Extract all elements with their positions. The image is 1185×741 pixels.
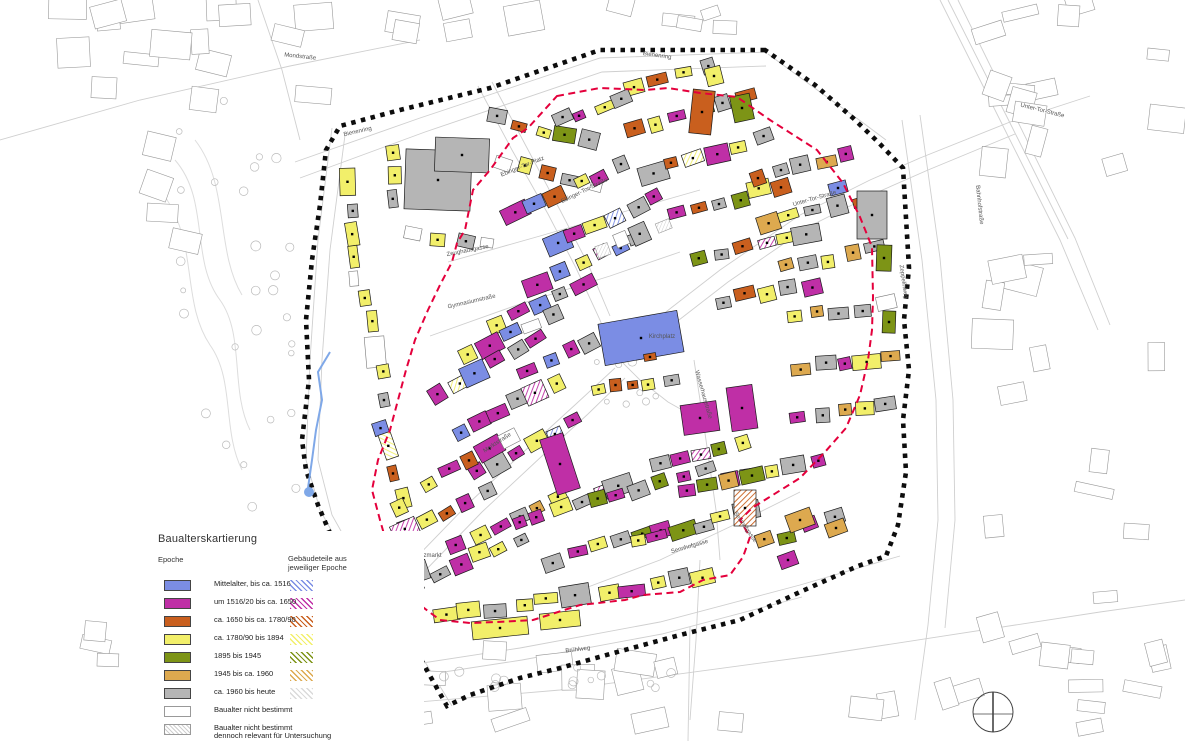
tree-icon bbox=[239, 187, 248, 196]
building-survey-dot bbox=[864, 407, 866, 409]
unclassified-building bbox=[142, 131, 176, 161]
building-survey-dot bbox=[704, 467, 706, 469]
legend-title: Baualterskartierung bbox=[158, 533, 424, 545]
building-survey-dot bbox=[459, 382, 461, 384]
building-survey-dot bbox=[786, 537, 788, 539]
building-survey-dot bbox=[535, 516, 537, 518]
building-survey-dot bbox=[737, 146, 739, 148]
unclassified-building bbox=[1093, 590, 1118, 603]
unclassified-building bbox=[84, 621, 107, 642]
tree-icon bbox=[647, 680, 654, 687]
building-survey-dot bbox=[560, 506, 562, 508]
building-survey-dot bbox=[517, 348, 519, 350]
tree-icon bbox=[271, 271, 280, 280]
building-survey-dot bbox=[582, 261, 584, 263]
building-survey-dot bbox=[837, 312, 839, 314]
unclassified-building bbox=[1148, 342, 1165, 370]
unclassified-building bbox=[1148, 104, 1185, 133]
unclassified-building bbox=[971, 20, 1006, 45]
building-survey-dot bbox=[757, 177, 759, 179]
building-survey-dot bbox=[563, 134, 565, 136]
building-survey-dot bbox=[461, 154, 463, 156]
building-survey-dot bbox=[536, 440, 538, 442]
building-survey-dot bbox=[478, 551, 480, 553]
unclassified-building bbox=[1102, 153, 1128, 176]
tree-icon bbox=[283, 314, 290, 321]
building-survey-dot bbox=[436, 239, 438, 241]
building-survey-dot bbox=[526, 370, 528, 372]
tree-icon bbox=[176, 129, 182, 135]
building-survey-dot bbox=[766, 293, 768, 295]
unclassified-building bbox=[295, 85, 332, 104]
unclassified-building bbox=[1071, 649, 1094, 665]
building-survey-dot bbox=[780, 169, 782, 171]
building-survey-dot bbox=[394, 174, 396, 176]
unclassified-building bbox=[934, 677, 959, 710]
building-survey-dot bbox=[559, 619, 561, 621]
building-survey-dot bbox=[799, 519, 801, 521]
tree-icon bbox=[289, 341, 295, 347]
building-survey-dot bbox=[352, 210, 354, 212]
building bbox=[403, 226, 422, 241]
legend-label: Baualter nicht bestimmt dennoch relevant… bbox=[214, 724, 331, 741]
building-survey-dot bbox=[686, 489, 688, 491]
building-survey-dot bbox=[559, 293, 561, 295]
building-survey-dot bbox=[581, 180, 583, 182]
building-survey-dot bbox=[534, 337, 536, 339]
building-survey-dot bbox=[568, 179, 570, 181]
unclassified-building bbox=[979, 146, 1008, 178]
building-survey-dot bbox=[743, 292, 745, 294]
tree-icon bbox=[248, 502, 257, 511]
building-survey-dot bbox=[682, 529, 684, 531]
building-survey-dot bbox=[657, 581, 659, 583]
building-survey-dot bbox=[889, 355, 891, 357]
legend-label: um 1516/20 bis ca. 1650 bbox=[214, 598, 296, 606]
building-survey-dot bbox=[722, 302, 724, 304]
building-survey-dot bbox=[546, 172, 548, 174]
building bbox=[349, 271, 359, 287]
tree-icon bbox=[292, 484, 300, 492]
building bbox=[655, 219, 672, 234]
building-survey-dot bbox=[786, 286, 788, 288]
building-survey-dot bbox=[524, 604, 526, 606]
unclassified-building bbox=[191, 29, 210, 55]
building-survey-dot bbox=[552, 313, 554, 315]
building-survey-dot bbox=[578, 115, 580, 117]
tree-icon bbox=[251, 286, 260, 295]
building-survey-dot bbox=[837, 187, 839, 189]
building-survey-dot bbox=[884, 403, 886, 405]
building-survey-dot bbox=[844, 408, 846, 410]
legend-row-nicht-bestimmt-relevant: Baualter nicht bestimmt dennoch relevant… bbox=[156, 721, 424, 741]
building-survey-dot bbox=[351, 233, 353, 235]
epoch-hatch-swatch-1960-heute bbox=[290, 688, 313, 699]
building-survey-dot bbox=[496, 463, 498, 465]
building-survey-dot bbox=[811, 286, 813, 288]
building-survey-dot bbox=[816, 310, 818, 312]
building-survey-dot bbox=[404, 528, 406, 530]
building-survey-dot bbox=[817, 460, 819, 462]
unclassified-building bbox=[983, 514, 1004, 538]
building-survey-dot bbox=[552, 562, 554, 564]
building-survey-dot bbox=[559, 270, 561, 272]
building-survey-dot bbox=[467, 609, 469, 611]
legend-row-1895-1945: 1895 bis 1945 bbox=[156, 649, 424, 667]
unclassified-building bbox=[1039, 642, 1070, 669]
building-survey-dot bbox=[570, 348, 572, 350]
building-survey-dot bbox=[716, 153, 718, 155]
unclassified-building bbox=[1089, 448, 1109, 473]
building-survey-dot bbox=[682, 71, 684, 73]
building-survey-dot bbox=[767, 222, 769, 224]
tree-icon bbox=[180, 309, 189, 318]
building-survey-dot bbox=[653, 195, 655, 197]
building-survey-dot bbox=[799, 368, 801, 370]
building-survey-dot bbox=[468, 459, 470, 461]
building-survey-dot bbox=[614, 384, 616, 386]
tree-icon bbox=[492, 674, 501, 683]
unclassified-building bbox=[436, 0, 473, 20]
building-survey-dot bbox=[392, 198, 394, 200]
building-survey-dot bbox=[460, 563, 462, 565]
epoch-swatch-1945-1960 bbox=[164, 670, 191, 681]
building-survey-dot bbox=[713, 75, 715, 77]
epoch-swatch-1516-1650 bbox=[164, 598, 191, 609]
roundabout bbox=[973, 692, 1013, 732]
legend: Baualterskartierung Epoche Gebäudeteile … bbox=[156, 531, 424, 741]
building-survey-dot bbox=[559, 463, 561, 465]
tree-icon bbox=[652, 684, 660, 692]
building-survey-dot bbox=[654, 124, 656, 126]
tree-icon bbox=[642, 398, 649, 405]
building-survey-dot bbox=[545, 597, 547, 599]
building-survey-dot bbox=[639, 233, 641, 235]
building-survey-dot bbox=[706, 483, 708, 485]
building-survey-dot bbox=[792, 464, 794, 466]
epoch-swatch-1780-1894 bbox=[164, 634, 191, 645]
tree-icon bbox=[251, 241, 261, 251]
building-survey-dot bbox=[597, 388, 599, 390]
epoch-hatch-swatch-mittelalter bbox=[290, 580, 313, 591]
building-survey-dot bbox=[844, 362, 846, 364]
unclassified-building bbox=[1074, 481, 1114, 499]
unclassified-building bbox=[700, 5, 720, 21]
building-survey-dot bbox=[698, 257, 700, 259]
building-survey-dot bbox=[825, 361, 827, 363]
epoch-swatch-1895-1945 bbox=[164, 652, 191, 663]
legend-label: ca. 1780/90 bis 1894 bbox=[214, 634, 284, 642]
unclassified-building bbox=[1025, 125, 1048, 157]
unclassified-building bbox=[676, 16, 703, 32]
legend-label: 1945 bis ca. 1960 bbox=[214, 670, 273, 678]
legend-label: Mittelalter, bis ca. 1516 bbox=[214, 580, 291, 588]
building-survey-dot bbox=[799, 164, 801, 166]
unclassified-building bbox=[1077, 700, 1105, 714]
building-survey-dot bbox=[630, 590, 632, 592]
building-survey-dot bbox=[536, 284, 538, 286]
building bbox=[364, 336, 386, 368]
building-survey-dot bbox=[807, 261, 809, 263]
building-survey-dot bbox=[620, 163, 622, 165]
unclassified-building bbox=[1123, 523, 1149, 540]
building-survey-dot bbox=[533, 203, 535, 205]
street-label: Bienenring bbox=[643, 51, 672, 61]
street-label: Bahnhofstraße bbox=[974, 185, 984, 225]
building-survey-dot bbox=[796, 416, 798, 418]
building-survey-dot bbox=[437, 179, 439, 181]
building-survey-dot bbox=[873, 245, 875, 247]
building-survey-dot bbox=[744, 507, 746, 509]
building-survey-dot bbox=[766, 242, 768, 244]
legend-label: ca. 1960 bis heute bbox=[214, 688, 275, 696]
building-survey-dot bbox=[392, 472, 394, 474]
building-survey-dot bbox=[497, 412, 499, 414]
unclassified-building bbox=[576, 669, 605, 699]
building-survey-dot bbox=[742, 442, 744, 444]
building-survey-dot bbox=[464, 502, 466, 504]
unclassified-building bbox=[91, 77, 117, 99]
stream-pond bbox=[304, 487, 314, 497]
building-survey-dot bbox=[631, 384, 633, 386]
building-survey-dot bbox=[543, 131, 545, 133]
building-survey-dot bbox=[534, 392, 536, 394]
unclassified-building bbox=[147, 203, 179, 223]
building-survey-dot bbox=[598, 177, 600, 179]
building-survey-dot bbox=[659, 462, 661, 464]
building-survey-dot bbox=[519, 521, 521, 523]
building-survey-dot bbox=[785, 264, 787, 266]
building-survey-dot bbox=[445, 613, 447, 615]
building-survey-dot bbox=[604, 106, 606, 108]
building-survey-dot bbox=[692, 157, 694, 159]
street-label: Gymnasiumstraße bbox=[447, 293, 497, 310]
tree-icon bbox=[269, 286, 278, 295]
building-survey-dot bbox=[655, 535, 657, 537]
street-label: Mondstraße bbox=[284, 52, 317, 61]
tree-icon bbox=[653, 393, 659, 399]
building-survey-dot bbox=[382, 370, 384, 372]
building-survey-dot bbox=[550, 359, 552, 361]
unclassified-building bbox=[1002, 4, 1039, 22]
building-survey-dot bbox=[614, 494, 616, 496]
building-survey-dot bbox=[486, 490, 488, 492]
tree-icon bbox=[176, 257, 185, 266]
building-survey-dot bbox=[436, 393, 438, 395]
unclassified-building bbox=[97, 653, 119, 667]
building-survey-dot bbox=[364, 297, 366, 299]
building-survey-dot bbox=[640, 337, 642, 339]
building-survey-dot bbox=[379, 427, 381, 429]
legend-epoche-header: Epoche bbox=[158, 555, 183, 564]
building-survey-dot bbox=[888, 321, 890, 323]
building-survey-dot bbox=[834, 516, 836, 518]
building-survey-dot bbox=[703, 526, 705, 528]
tree-icon bbox=[222, 441, 230, 449]
building-survey-dot bbox=[835, 527, 837, 529]
street-label: Kirchplatz bbox=[649, 334, 675, 340]
building-survey-dot bbox=[479, 534, 481, 536]
building-survey-dot bbox=[614, 217, 616, 219]
building-survey-dot bbox=[574, 594, 576, 596]
building-survey-dot bbox=[460, 431, 462, 433]
unclassified-building bbox=[1144, 639, 1167, 666]
building-survey-dot bbox=[862, 310, 864, 312]
unclassified-building bbox=[982, 280, 1005, 310]
building-survey-dot bbox=[699, 417, 701, 419]
tree-icon bbox=[594, 360, 599, 365]
tree-icon bbox=[256, 154, 262, 160]
building-survey-dot bbox=[871, 214, 873, 216]
building-survey-dot bbox=[593, 224, 595, 226]
unclassified-building bbox=[1024, 253, 1053, 265]
building-survey-dot bbox=[827, 261, 829, 263]
unclassified-building bbox=[1009, 633, 1041, 654]
unclassified-building bbox=[491, 708, 530, 733]
building-survey-dot bbox=[707, 65, 709, 67]
epoch-hatch-swatch-1945-1960 bbox=[290, 670, 313, 681]
building-survey-dot bbox=[787, 559, 789, 561]
street-label: Sennhofgasse bbox=[670, 539, 709, 556]
building-survey-dot bbox=[439, 573, 441, 575]
unclassified-building bbox=[139, 169, 174, 202]
unclassified-building bbox=[443, 19, 472, 42]
building-survey-dot bbox=[822, 414, 824, 416]
tree-icon bbox=[178, 187, 185, 194]
building-survey-dot bbox=[740, 199, 742, 201]
building-survey-dot bbox=[398, 506, 400, 508]
building-survey-dot bbox=[787, 214, 789, 216]
building-survey-dot bbox=[515, 452, 517, 454]
building-survey-dot bbox=[700, 453, 702, 455]
tree-icon bbox=[220, 97, 227, 104]
tree-icon bbox=[604, 399, 609, 404]
building-survey-dot bbox=[588, 342, 590, 344]
building-survey-dot bbox=[536, 507, 538, 509]
legend-row-1516-1650: um 1516/20 bis ca. 1650 bbox=[156, 595, 424, 613]
epoch-swatch-mittelalter bbox=[164, 580, 191, 591]
building-survey-dot bbox=[741, 107, 743, 109]
baualterskartierung-map-page: MondstraßeBienenringBienenringEbinger-To… bbox=[0, 0, 1185, 741]
unclassified-building bbox=[189, 86, 219, 113]
building-survey-dot bbox=[670, 379, 672, 381]
building-survey-dot bbox=[500, 525, 502, 527]
legend-row-1960-heute: ca. 1960 bis heute bbox=[156, 685, 424, 703]
building-survey-dot bbox=[494, 358, 496, 360]
building-survey-dot bbox=[581, 501, 583, 503]
tree-icon bbox=[181, 288, 186, 293]
unclassified-building bbox=[606, 0, 636, 17]
unclassified-building bbox=[718, 712, 744, 733]
building-survey-dot bbox=[494, 610, 496, 612]
building-survey-dot bbox=[679, 457, 681, 459]
legend-column-headers: Epoche Gebäudeteile aus jeweiliger Epoch… bbox=[156, 555, 424, 577]
building-survey-dot bbox=[617, 485, 619, 487]
unclassified-building bbox=[1123, 680, 1162, 699]
unclassified-building bbox=[1076, 718, 1103, 736]
epoch-swatch-1650-1780 bbox=[164, 616, 191, 627]
building-survey-dot bbox=[517, 310, 519, 312]
building-survey-dot bbox=[683, 475, 685, 477]
building-survey-dot bbox=[763, 538, 765, 540]
tree-icon bbox=[267, 416, 274, 423]
building-survey-dot bbox=[652, 172, 654, 174]
building-survey-dot bbox=[727, 479, 729, 481]
building-survey-dot bbox=[392, 152, 394, 154]
building-survey-dot bbox=[426, 518, 428, 520]
unclassified-building bbox=[169, 228, 203, 255]
building bbox=[875, 294, 897, 312]
building-survey-dot bbox=[670, 162, 672, 164]
building-survey-dot bbox=[573, 232, 575, 234]
building-survey-dot bbox=[762, 135, 764, 137]
building-survey-dot bbox=[446, 512, 448, 514]
stream-line bbox=[308, 352, 330, 488]
unclassified-building bbox=[48, 0, 86, 19]
building-survey-dot bbox=[596, 497, 598, 499]
unclassified-building bbox=[971, 318, 1013, 349]
street-label: Brühlweg bbox=[565, 646, 591, 655]
building-survey-dot bbox=[582, 283, 584, 285]
unclassified-building bbox=[713, 20, 737, 34]
building-survey-dot bbox=[473, 372, 475, 374]
building-survey-dot bbox=[539, 304, 541, 306]
building-survey-dot bbox=[476, 470, 478, 472]
unclassified-building bbox=[1029, 345, 1050, 372]
building-survey-dot bbox=[633, 86, 635, 88]
tree-icon bbox=[289, 350, 295, 356]
building-survey-dot bbox=[845, 153, 847, 155]
unclassified-building bbox=[90, 0, 127, 29]
building-survey-dot bbox=[597, 543, 599, 545]
building-survey-dot bbox=[719, 515, 721, 517]
building-survey-dot bbox=[676, 115, 678, 117]
tree-icon bbox=[455, 667, 464, 676]
building-survey-dot bbox=[520, 539, 522, 541]
building-survey-dot bbox=[454, 544, 456, 546]
building-survey-dot bbox=[467, 353, 469, 355]
building-survey-dot bbox=[495, 324, 497, 326]
building-survey-dot bbox=[577, 550, 579, 552]
unclassified-building bbox=[149, 29, 192, 60]
building-survey-dot bbox=[751, 474, 753, 476]
epoch-swatch-nicht-bestimmt bbox=[164, 706, 191, 717]
building-survey-dot bbox=[780, 186, 782, 188]
building-survey-dot bbox=[489, 344, 491, 346]
building-survey-dot bbox=[496, 115, 498, 117]
legend-label: ca. 1650 bis ca. 1780/90 bbox=[214, 616, 296, 624]
building-survey-dot bbox=[352, 256, 354, 258]
building-survey-dot bbox=[620, 98, 622, 100]
building-survey-dot bbox=[852, 251, 854, 253]
building-survey-dot bbox=[675, 211, 677, 213]
building-survey-dot bbox=[701, 577, 703, 579]
tree-icon bbox=[272, 153, 281, 162]
tree-icon bbox=[250, 163, 259, 172]
building-survey-dot bbox=[771, 470, 773, 472]
building-survey-dot bbox=[805, 233, 807, 235]
building-survey-dot bbox=[811, 209, 813, 211]
unclassified-building bbox=[483, 641, 507, 661]
legend-row-nicht-bestimmt: Baualter nicht bestimmt bbox=[156, 703, 424, 721]
building-survey-dot bbox=[553, 195, 555, 197]
building-survey-dot bbox=[637, 206, 639, 208]
building-survey-dot bbox=[518, 125, 520, 127]
building-survey-dot bbox=[509, 331, 511, 333]
building-survey-dot bbox=[497, 548, 499, 550]
building-survey-dot bbox=[678, 577, 680, 579]
building-survey-dot bbox=[741, 407, 743, 409]
